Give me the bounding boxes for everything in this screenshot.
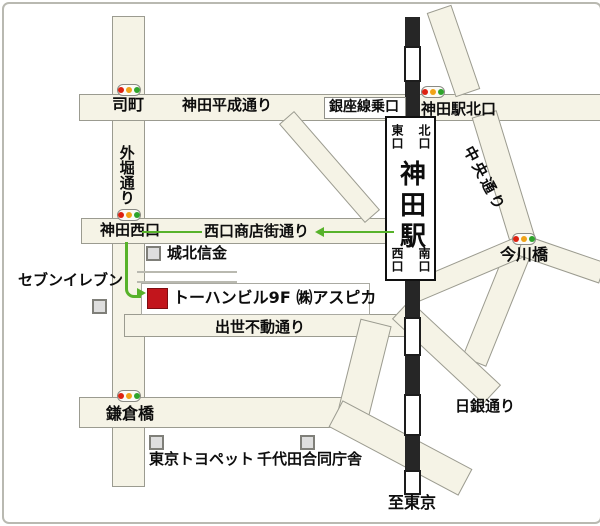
- road-diagonal-connector: [279, 111, 380, 223]
- label-kamakurabashi: 鎌倉橋: [106, 406, 154, 423]
- destination-label: トーハンビル9F ㈱アスピカ: [173, 290, 376, 307]
- road-southeast-crossing: [329, 400, 473, 496]
- route-arrowhead-right: [137, 288, 146, 298]
- railway-segment: [405, 436, 420, 470]
- building-marker-seven-eleven: [92, 299, 107, 314]
- label-nichigin-dori: 日銀通り: [455, 399, 515, 415]
- label-sotobori-dori: 外堀通り: [118, 145, 134, 205]
- traffic-light-icon: [512, 233, 536, 245]
- traffic-light-icon: [117, 390, 141, 402]
- kanda-station-box: 東口 北口 神田駅 西口 南口: [385, 116, 436, 281]
- route-arrowhead-left: [315, 227, 324, 237]
- station-exit-west: 西口: [391, 247, 403, 273]
- label-chiyoda-godochosha: 千代田合同庁舎: [257, 452, 362, 468]
- station-exit-south: 南口: [418, 247, 430, 273]
- railway-segment: [404, 317, 421, 356]
- destination-box: トーハンビル9F ㈱アスピカ: [141, 283, 370, 315]
- building-marker-chiyoda-godochosha: [300, 435, 315, 450]
- railway-segment: [404, 470, 421, 495]
- traffic-light-icon: [117, 209, 141, 221]
- label-to-tokyo: 至東京: [388, 495, 436, 512]
- route-line-mid: [142, 231, 202, 233]
- label-tokyo-toyopet: 東京トヨペット: [149, 452, 254, 468]
- railway-segment: [404, 394, 421, 436]
- railway-segment: [405, 17, 420, 46]
- railway-segment: [405, 280, 420, 317]
- label-kanda-heisei-dori: 神田平成通り: [182, 98, 272, 114]
- label-kanda-station-north-exit: 神田駅北口: [421, 102, 496, 118]
- route-line-from-station: [324, 231, 394, 233]
- railway-segment: [405, 82, 420, 120]
- building-marker-tokyo-toyopet: [149, 435, 164, 450]
- label-johoku-shinkin: 城北信金: [167, 246, 227, 262]
- label-seven-eleven: セブンイレブン: [18, 273, 123, 289]
- label-nishiguchi-shotengai-dori: 西口商店街通り: [204, 224, 309, 240]
- station-exit-north: 北口: [418, 124, 430, 150]
- railway-segment: [404, 46, 421, 82]
- label-shusse-fudo-dori: 出世不動通り: [215, 320, 305, 336]
- railway-segment: [405, 356, 420, 394]
- traffic-light-icon: [421, 86, 445, 98]
- kanda-access-map: 銀座線乗口 東口 北口 神田駅 西口 南口 トーハンビル9F ㈱アスピカ 司町 …: [2, 2, 600, 524]
- road-chuo-dori-top: [427, 5, 481, 98]
- station-exit-east: 東口: [391, 124, 403, 150]
- alley-line: [137, 271, 237, 273]
- building-marker-johoku-shinkin: [146, 246, 161, 261]
- label-tsukasamachi: 司町: [112, 97, 144, 114]
- ginza-line-entrance-label: 銀座線乗口: [329, 100, 399, 115]
- destination-marker: [147, 288, 168, 309]
- station-name: 神田駅: [398, 160, 424, 253]
- traffic-light-icon: [117, 84, 141, 96]
- label-imagawabashi: 今川橋: [500, 247, 548, 264]
